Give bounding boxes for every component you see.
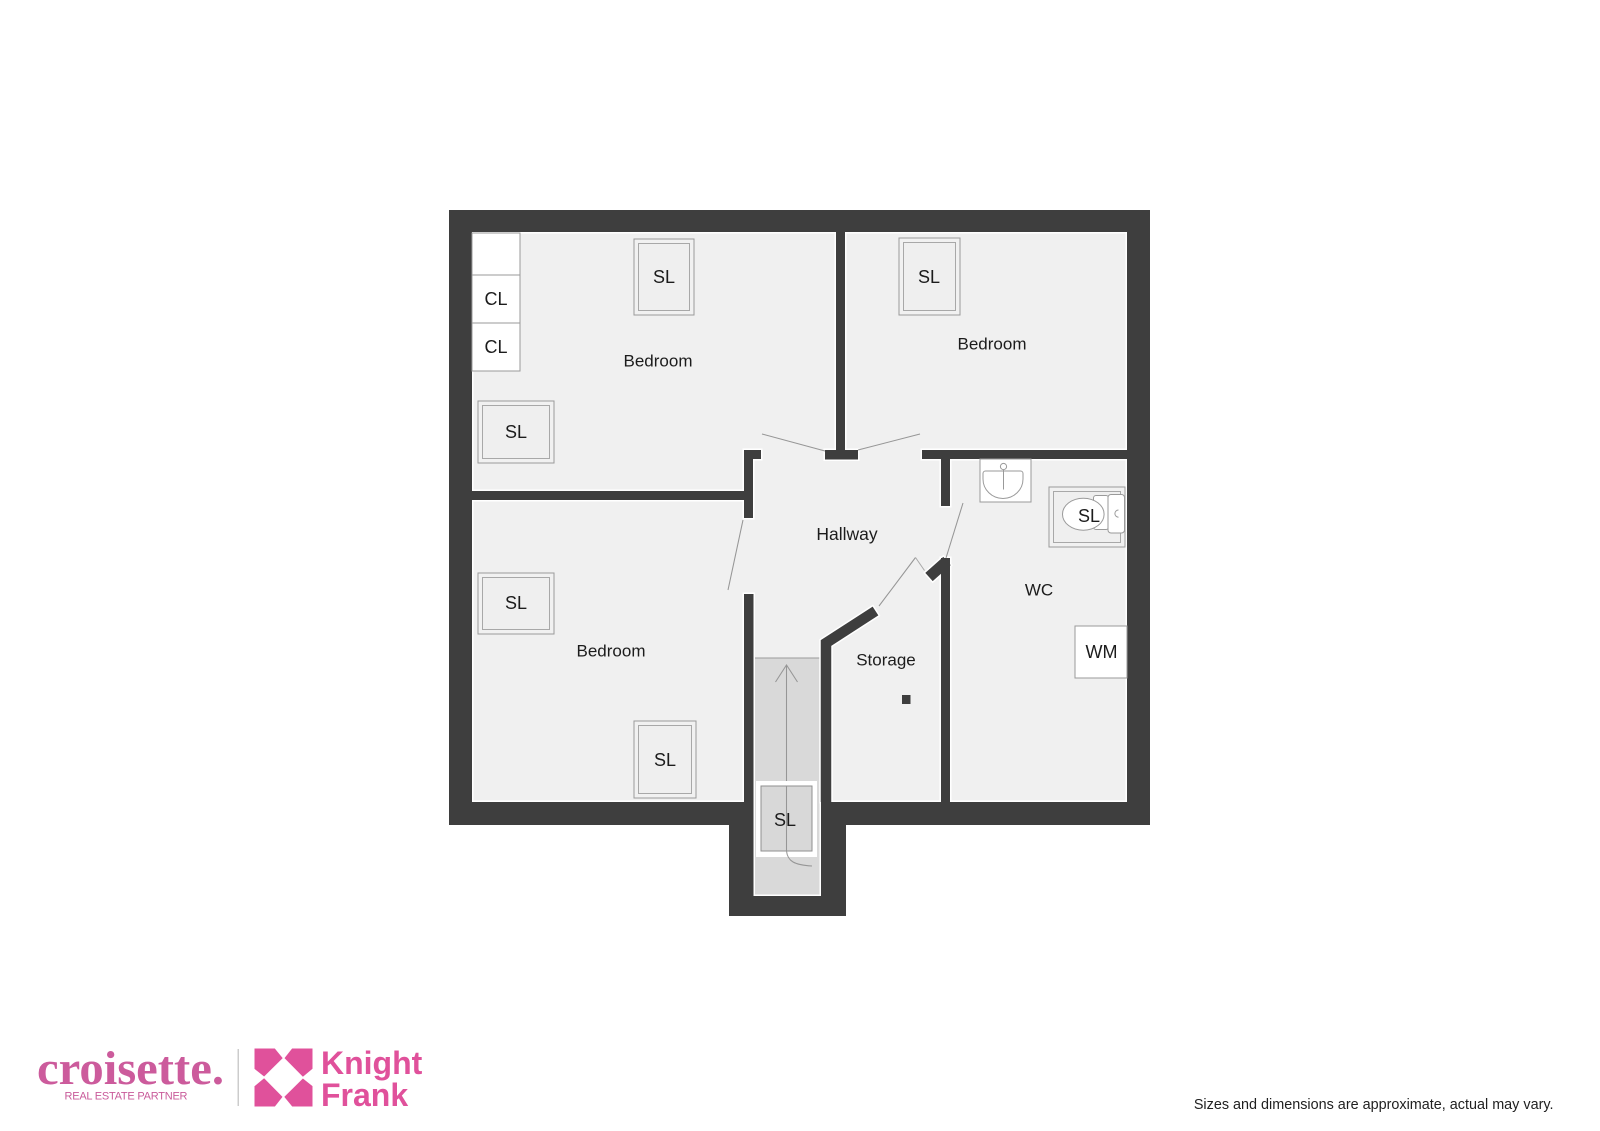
svg-text:SL: SL [774,810,796,830]
svg-text:Bedroom: Bedroom [958,335,1027,354]
svg-text:WC: WC [1025,581,1053,600]
svg-text:REAL ESTATE PARTNER: REAL ESTATE PARTNER [65,1091,188,1103]
svg-text:croisette.: croisette. [37,1042,224,1095]
svg-text:Knight: Knight [321,1045,423,1081]
svg-text:Frank: Frank [321,1077,408,1113]
svg-text:CL: CL [484,337,507,357]
svg-text:Sizes and dimensions are appro: Sizes and dimensions are approximate, ac… [1194,1097,1554,1113]
svg-text:WM: WM [1086,642,1118,662]
svg-text:SL: SL [918,267,940,287]
svg-text:SL: SL [505,593,527,613]
svg-text:CL: CL [484,289,507,309]
svg-text:SL: SL [654,750,676,770]
svg-text:Bedroom: Bedroom [577,642,646,661]
svg-text:SL: SL [653,267,675,287]
svg-text:SL: SL [505,422,527,442]
svg-text:Storage: Storage [856,651,916,670]
svg-text:Bedroom: Bedroom [624,352,693,371]
svg-text:SL: SL [1078,506,1100,526]
svg-text:Hallway: Hallway [816,524,878,544]
